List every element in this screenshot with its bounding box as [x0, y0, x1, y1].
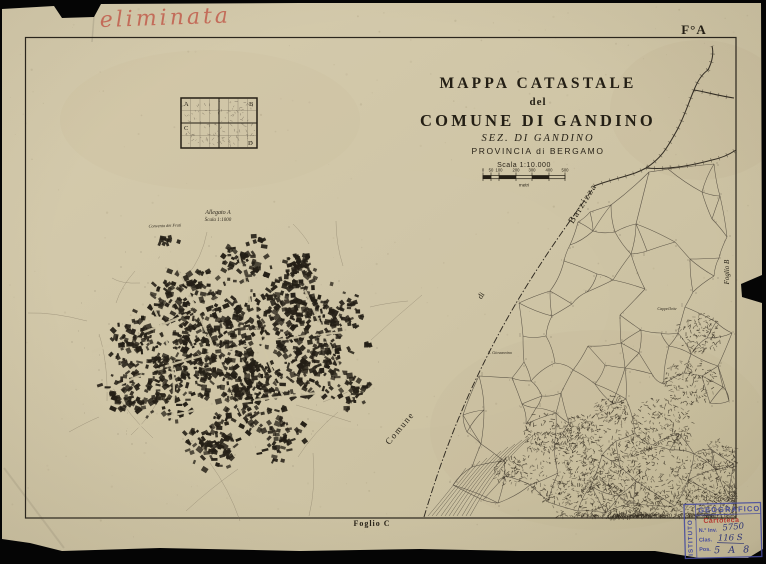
stamp-pos-value: 5 A 8 — [714, 544, 752, 556]
scanned-map-sheet: F°A eliminata MAPPA CATASTALE del COMUNE… — [0, 0, 766, 564]
map-sheet-scan: F°A eliminata MAPPA CATASTALE del COMUNE… — [0, 0, 766, 564]
index-grid-corner-b: B — [249, 101, 254, 108]
scale-tick: 200 — [513, 168, 521, 173]
inset-label: Allegato A — [204, 210, 231, 216]
update-note: Aggiornata a tutto il 1930 — [605, 513, 673, 521]
stamp-pos-label: Pos. — [699, 547, 711, 553]
map-title: MAPPA CATASTALE — [439, 75, 636, 92]
stamp-geografico-label: GEOGRAFICO — [698, 504, 760, 515]
stamp-inv-value: 5750 — [722, 521, 745, 533]
sheet-corner-label: F°A — [681, 22, 707, 37]
inset-scale-label: Scala 1:1000 — [205, 218, 232, 223]
town-name-label: Gandino — [245, 326, 264, 332]
stamp-inv-label: N.° Inv. — [699, 528, 718, 534]
map-title-del: del — [529, 96, 546, 108]
scale-tick: 300 — [529, 168, 537, 173]
foglio-b-label: Foglio B — [723, 259, 731, 285]
index-grid-corner-d: D — [248, 140, 253, 147]
map-title-comune: COMUNE DI GANDINO — [420, 111, 656, 130]
scale-unit-label: metri — [519, 183, 529, 188]
foglio-c-label: Foglio C — [353, 519, 390, 528]
map-title-sezione: SEZ. DI GANDINO — [481, 133, 594, 144]
cappellette-label: Cappellette — [657, 306, 676, 311]
stamp-istituto-label: ISTITUTO — [687, 519, 695, 556]
giovannino-label: S. Giovannino — [488, 350, 512, 355]
map-title-provincia: PROVINCIA di BERGAMO — [471, 146, 604, 156]
stamp-clas-value: 116 S — [718, 533, 743, 544]
index-grid-corner-c: C — [184, 125, 188, 132]
stamp-clas-label: Clas. — [699, 537, 713, 543]
index-grid-corner-a: A — [184, 101, 189, 108]
scale-label: Scala 1:10.000 — [497, 162, 551, 169]
handwritten-note: eliminata — [99, 3, 231, 33]
scale-tick: 500 — [562, 168, 570, 173]
scale-tick: 400 — [546, 168, 554, 173]
scale-tick: 50 — [489, 168, 494, 173]
scale-tick: 100 — [496, 168, 504, 173]
